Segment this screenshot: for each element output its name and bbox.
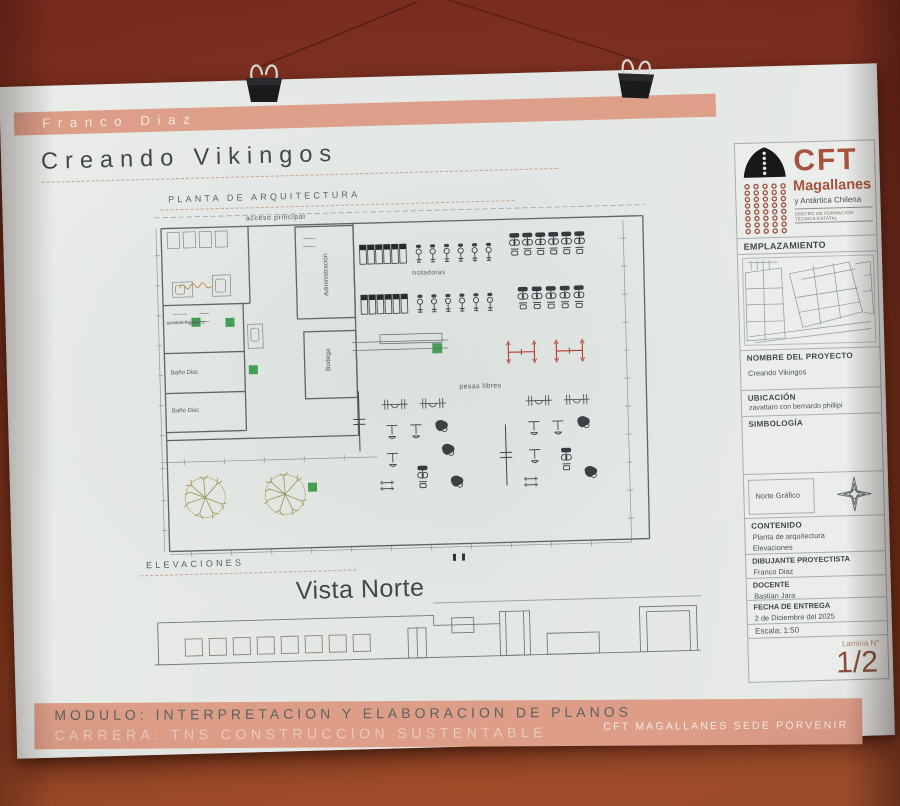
simbologia-label: SIMBOLOGÍA bbox=[742, 413, 881, 429]
tree-symbol bbox=[184, 475, 227, 519]
free-weights-area bbox=[352, 385, 597, 492]
cft-name: Magallanes bbox=[793, 176, 872, 194]
elevation-windows bbox=[185, 634, 370, 656]
sheet-title: Creando Vikingos bbox=[41, 140, 339, 175]
binder-clip-right bbox=[609, 47, 663, 106]
machine-rows bbox=[509, 231, 586, 309]
label-pesas-libres: pesas libres bbox=[459, 383, 501, 391]
simbologia-section: SIMBOLOGÍA bbox=[742, 412, 883, 474]
norte-grafico-label: Norte Gráfico bbox=[749, 479, 814, 501]
label-bano-disc-1: Baño Disc bbox=[171, 370, 199, 377]
script-logo-squiggle bbox=[179, 283, 211, 289]
footer-band: MODULO: INTERPRETACION Y ELABORACION DE … bbox=[34, 698, 862, 749]
footer-modulo: MODULO: INTERPRETACION Y ELABORACION DE … bbox=[54, 704, 632, 724]
barbell-rack-red bbox=[554, 339, 585, 362]
barbell-rack-red bbox=[506, 341, 537, 364]
binder-clip-left bbox=[238, 52, 290, 109]
photo-scene: Franco Diaz Creando Vikingos PLANTA DE A… bbox=[0, 0, 900, 806]
norte-grafico-section: Norte Gráfico bbox=[744, 470, 884, 518]
elevation-title: Vista Norte bbox=[295, 574, 424, 606]
bike-rows bbox=[416, 243, 493, 313]
tree-symbol bbox=[264, 472, 307, 516]
label-bano-disc-2: Baño Disc bbox=[172, 408, 200, 415]
cft-subtitle: y Antártica Chilena bbox=[794, 195, 861, 206]
site-map-section bbox=[738, 250, 880, 350]
label-servicio: servicio higienico bbox=[166, 320, 204, 327]
compass-rose-icon bbox=[834, 473, 875, 514]
ubicacion-section: UBICACIÓN zavattaro con bernardo phillip… bbox=[742, 386, 882, 416]
cft-logo-mark bbox=[739, 146, 791, 235]
elevation-section-underline bbox=[140, 570, 356, 577]
lamina-section: Lamina N° 1/2 bbox=[748, 634, 888, 684]
elevation-drawing bbox=[151, 596, 705, 677]
emplazamiento-label: EMPLAZAMIENTO bbox=[737, 235, 876, 252]
footer-carrera: CARRERA: TNS CONSTRUCCION SUSTENTABLE bbox=[54, 724, 547, 743]
cft-tagline: CENTRO DE FORMACIÓN TÉCNICA ESTATAL bbox=[795, 206, 873, 223]
plan-sheet: Franco Diaz Creando Vikingos PLANTA DE A… bbox=[0, 63, 895, 759]
contenido-section: CONTENIDO Planta de arquitectura Elevaci… bbox=[745, 514, 885, 554]
norte-grafico-cell: Norte Gráfico bbox=[748, 478, 815, 515]
site-map-sketch bbox=[742, 254, 876, 346]
label-trotadoras: trotadoras bbox=[412, 269, 445, 277]
scale-mark bbox=[453, 554, 466, 561]
nombre-proyecto-section: NOMBRE DEL PROYECTO Creando Vikingos bbox=[740, 346, 880, 390]
plan-section-label: PLANTA DE ARQUITECTURA bbox=[168, 189, 360, 204]
treadmill-rows bbox=[359, 244, 407, 314]
floor-plan-drawing bbox=[152, 197, 662, 570]
titleblock-logo: CFT Magallanes y Antártica Chilena CENTR… bbox=[735, 140, 876, 238]
cft-acronym: CFT bbox=[793, 143, 858, 179]
lamina-number: 1/2 bbox=[836, 645, 879, 680]
footer-sede: CFT MAGALLANES SEDE PORVENIR bbox=[603, 719, 848, 732]
titleblock: CFT Magallanes y Antártica Chilena CENTR… bbox=[734, 139, 890, 683]
